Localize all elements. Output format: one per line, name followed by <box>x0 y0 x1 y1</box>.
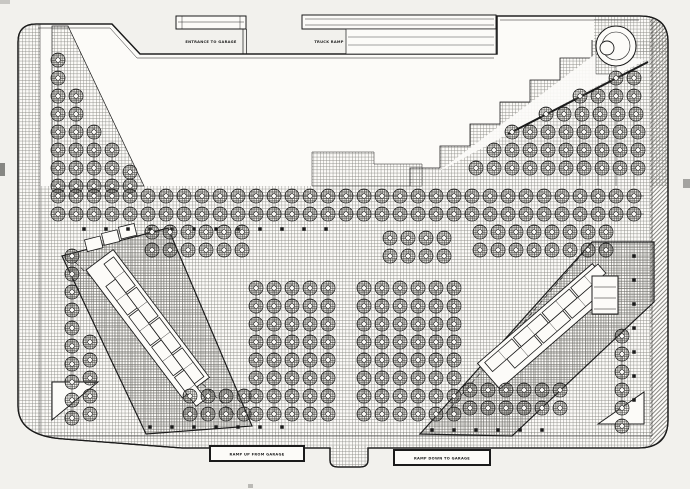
garage-entrance-ramp: ENTRANCE TO GARAGE <box>176 16 247 54</box>
ramp-down-label: RAMP DOWN TO GARAGE <box>414 457 470 461</box>
garage-ramp-up-box: RAMP UP FROM GARAGE <box>210 446 304 461</box>
south-tongue-paving <box>330 446 368 467</box>
garage-entrance-label: ENTRANCE TO GARAGE <box>185 40 237 44</box>
truck-ramp-label: TRUCK RAMP <box>314 40 343 44</box>
site-plan-drawing: ENTRANCE TO GARAGE TRUCK RAMP RAMP UP FR… <box>0 0 690 489</box>
garage-ramp-down-box: RAMP DOWN TO GARAGE <box>394 450 490 465</box>
kiosk-east <box>592 276 618 314</box>
truck-ramp: TRUCK RAMP <box>302 15 496 54</box>
ramp-up-label: RAMP UP FROM GARAGE <box>230 453 285 457</box>
scanned-site-plan-sheet: ENTRANCE TO GARAGE TRUCK RAMP RAMP UP FR… <box>0 0 690 489</box>
